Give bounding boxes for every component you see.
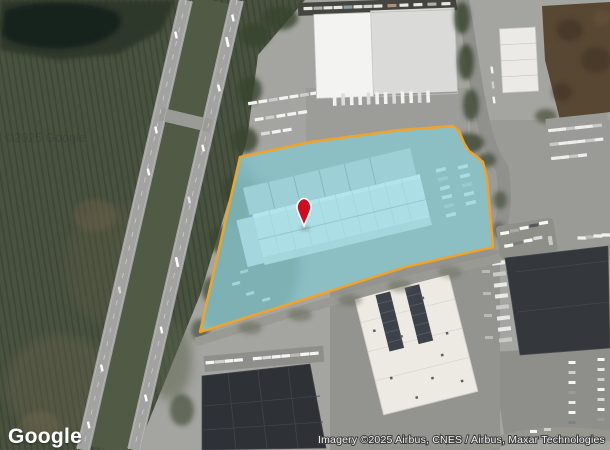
map-attribution: Imagery ©2025 Airbus, CNES / Airbus, Max… (318, 434, 605, 446)
trailer-rows-east (545, 112, 610, 174)
google-logo[interactable]: Google (8, 425, 82, 448)
imagery-watermark: ©2025 Google (5, 131, 86, 145)
building-dark-south (202, 364, 326, 450)
satellite-map[interactable]: ©2025 Google Google Imagery ©2025 Airbus… (0, 0, 610, 450)
warehouse-north (314, 8, 458, 107)
building-small-ne (499, 27, 538, 93)
pin-shadow (301, 227, 310, 231)
